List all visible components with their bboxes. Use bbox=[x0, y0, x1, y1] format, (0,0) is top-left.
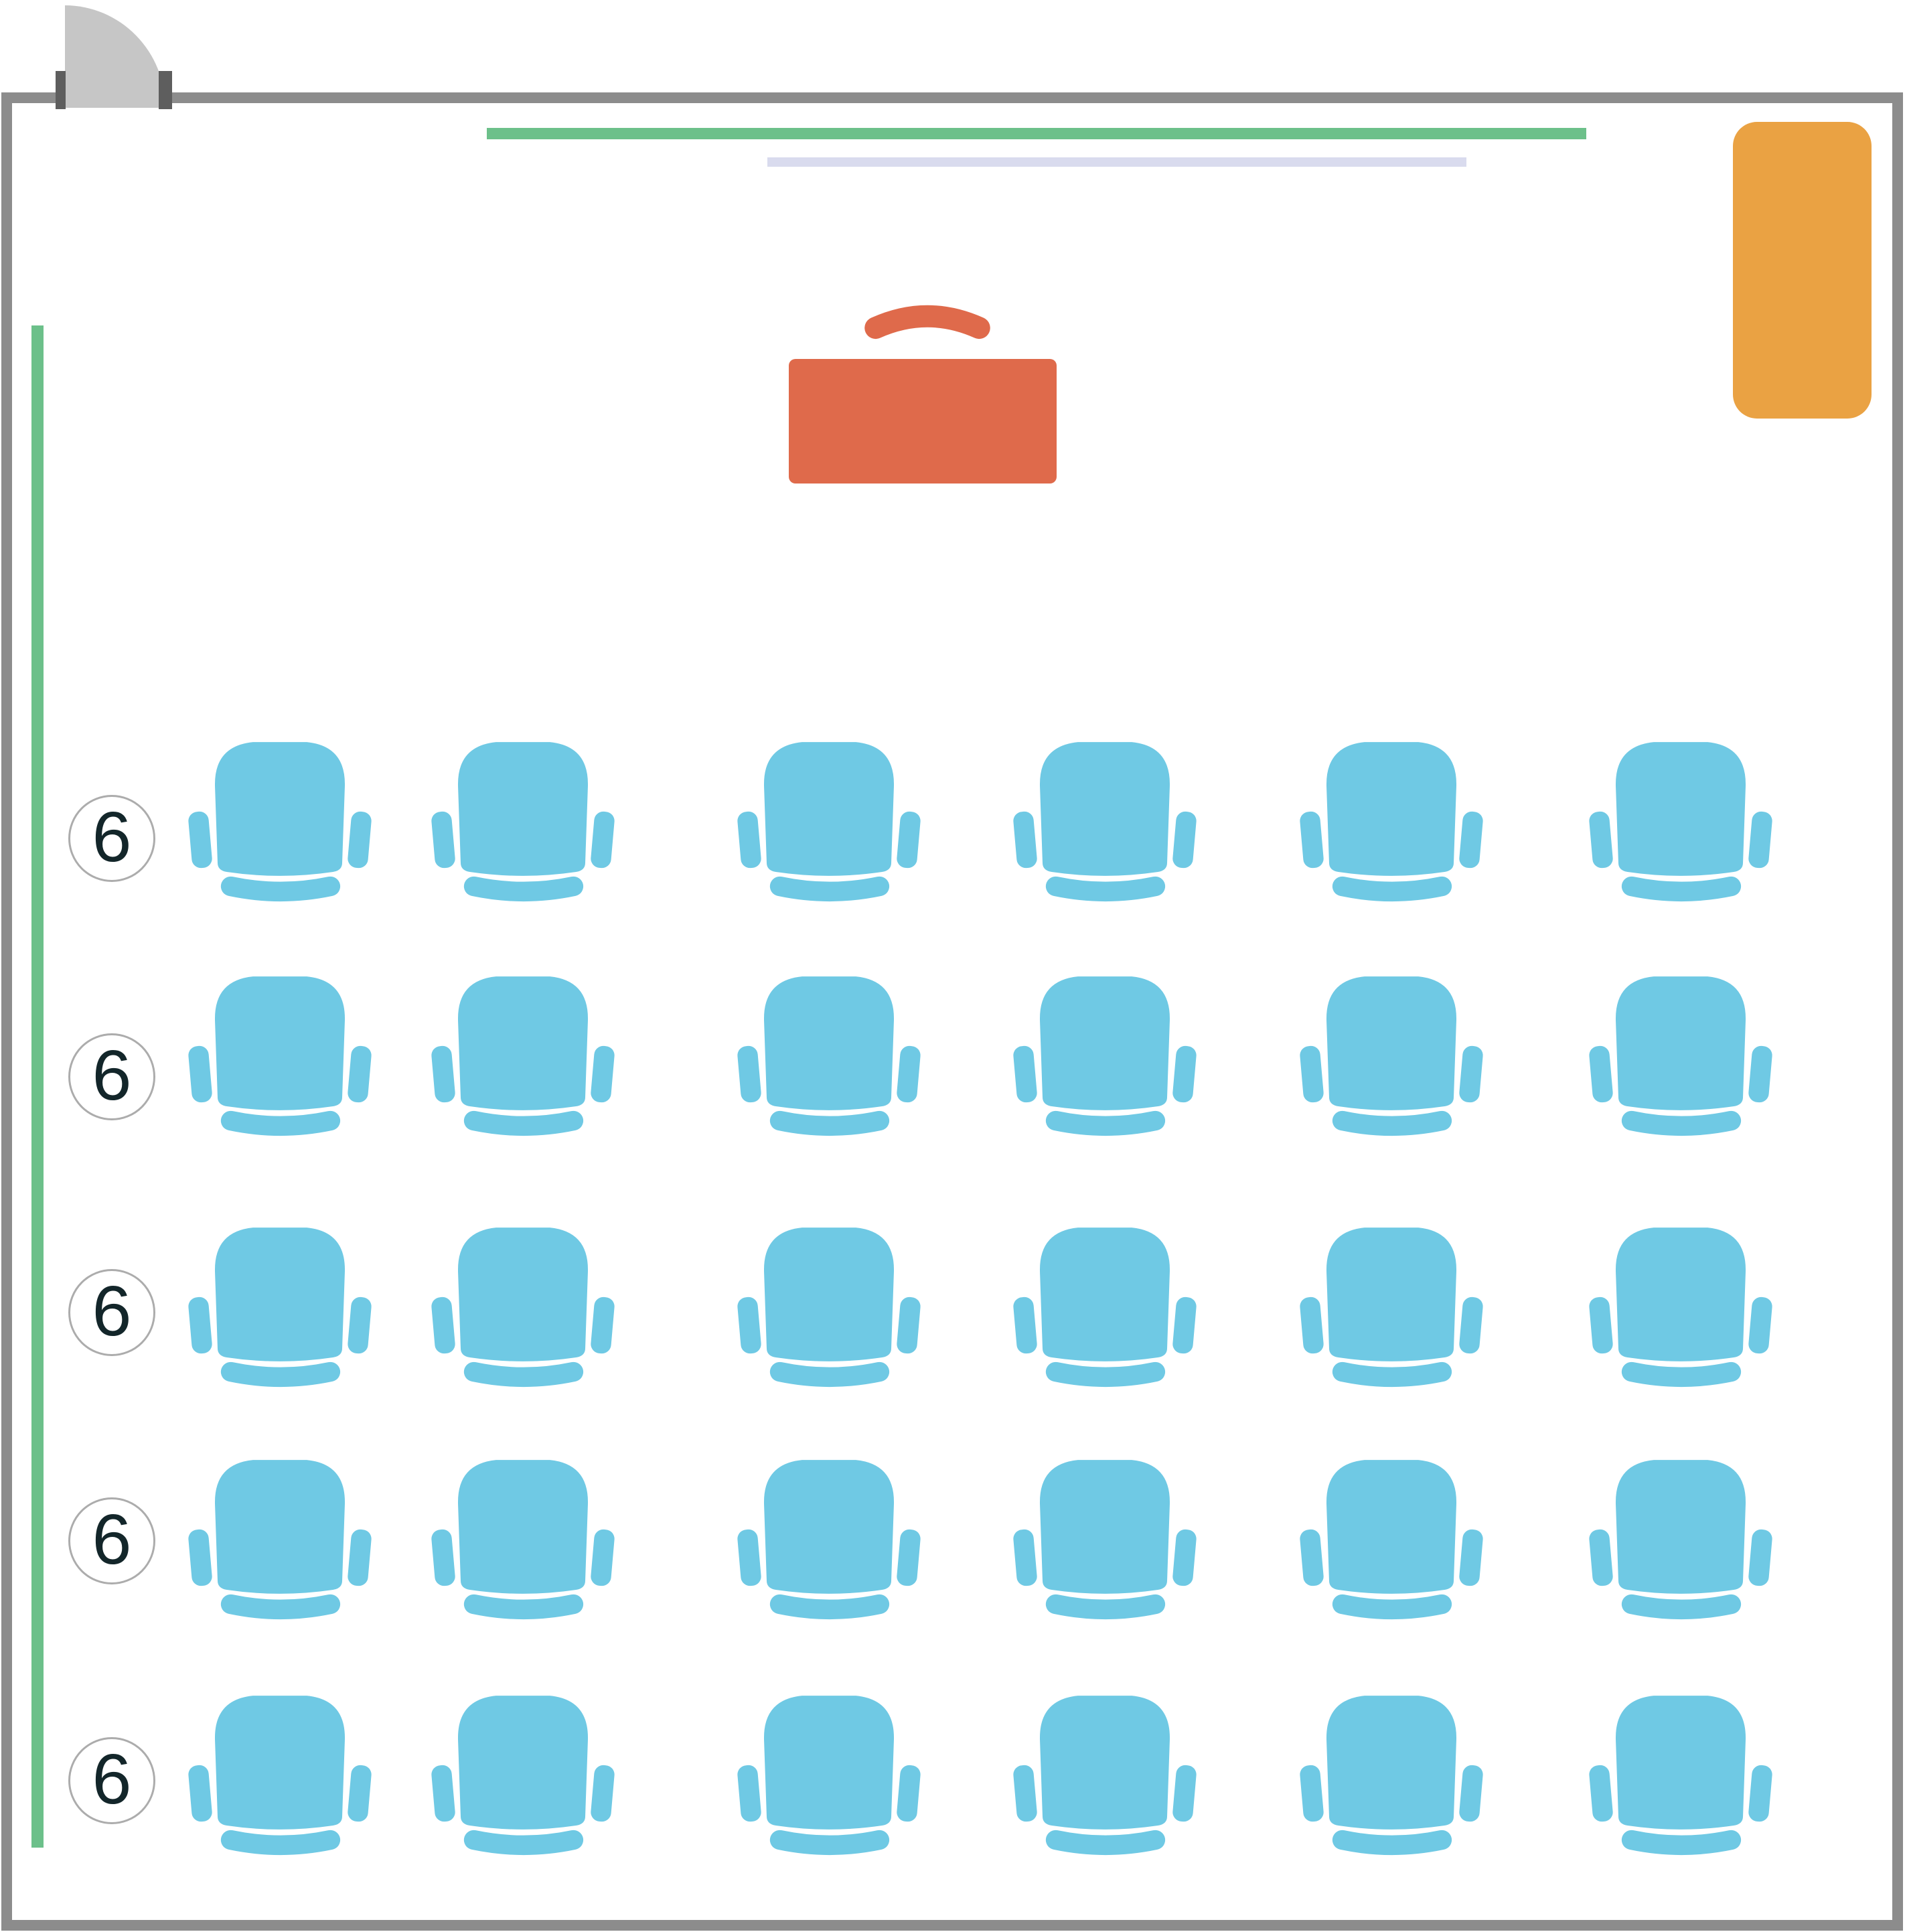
chair-r3-c2[interactable] bbox=[428, 1226, 618, 1394]
door-post-left bbox=[56, 71, 66, 109]
row-count: 6 bbox=[92, 1744, 132, 1815]
chair-r4-c6[interactable] bbox=[1586, 1459, 1776, 1626]
door-post-right bbox=[159, 71, 172, 109]
row-count: 6 bbox=[92, 1504, 132, 1575]
chair-r1-c5[interactable] bbox=[1296, 741, 1487, 908]
chair-r2-c1[interactable] bbox=[185, 975, 375, 1142]
teacher-desk[interactable] bbox=[789, 359, 1057, 484]
chair-r3-c5[interactable] bbox=[1296, 1226, 1487, 1394]
chair-r5-c3[interactable] bbox=[734, 1694, 924, 1862]
teacher-chair-icon[interactable] bbox=[862, 302, 993, 341]
chair-r3-c4[interactable] bbox=[1010, 1226, 1200, 1394]
chair-r4-c3[interactable] bbox=[734, 1459, 924, 1626]
chair-r3-c1[interactable] bbox=[185, 1226, 375, 1394]
chair-r1-c4[interactable] bbox=[1010, 741, 1200, 908]
row-seat-count-badge-3: 6 bbox=[68, 1269, 155, 1356]
side-board-line[interactable] bbox=[31, 325, 44, 1848]
door-leaf-icon[interactable] bbox=[65, 5, 165, 108]
chair-r4-c2[interactable] bbox=[428, 1459, 618, 1626]
chair-r4-c5[interactable] bbox=[1296, 1459, 1487, 1626]
row-seat-count-badge-1: 6 bbox=[68, 795, 155, 882]
chair-r2-c3[interactable] bbox=[734, 975, 924, 1142]
chair-r5-c5[interactable] bbox=[1296, 1694, 1487, 1862]
row-seat-count-badge-4: 6 bbox=[68, 1497, 155, 1584]
projection-screen[interactable] bbox=[767, 157, 1466, 167]
cabinet[interactable] bbox=[1733, 122, 1872, 419]
chair-r1-c1[interactable] bbox=[185, 741, 375, 908]
row-count: 6 bbox=[92, 1040, 132, 1111]
chair-r2-c2[interactable] bbox=[428, 975, 618, 1142]
chair-r3-c3[interactable] bbox=[734, 1226, 924, 1394]
chair-r5-c2[interactable] bbox=[428, 1694, 618, 1862]
row-seat-count-badge-5: 6 bbox=[68, 1737, 155, 1824]
chair-r1-c3[interactable] bbox=[734, 741, 924, 908]
chair-r2-c5[interactable] bbox=[1296, 975, 1487, 1142]
chair-r5-c6[interactable] bbox=[1586, 1694, 1776, 1862]
chair-r3-c6[interactable] bbox=[1586, 1226, 1776, 1394]
chair-r2-c6[interactable] bbox=[1586, 975, 1776, 1142]
chair-r1-c6[interactable] bbox=[1586, 741, 1776, 908]
chair-r5-c4[interactable] bbox=[1010, 1694, 1200, 1862]
classroom-floorplan: 6 6 bbox=[0, 0, 1905, 1932]
row-seat-count-badge-2: 6 bbox=[68, 1033, 155, 1120]
chair-r2-c4[interactable] bbox=[1010, 975, 1200, 1142]
chair-r4-c4[interactable] bbox=[1010, 1459, 1200, 1626]
row-count: 6 bbox=[92, 802, 132, 873]
chair-r4-c1[interactable] bbox=[185, 1459, 375, 1626]
chair-r1-c2[interactable] bbox=[428, 741, 618, 908]
whiteboard-line[interactable] bbox=[487, 128, 1586, 139]
row-count: 6 bbox=[92, 1276, 132, 1347]
chair-r5-c1[interactable] bbox=[185, 1694, 375, 1862]
